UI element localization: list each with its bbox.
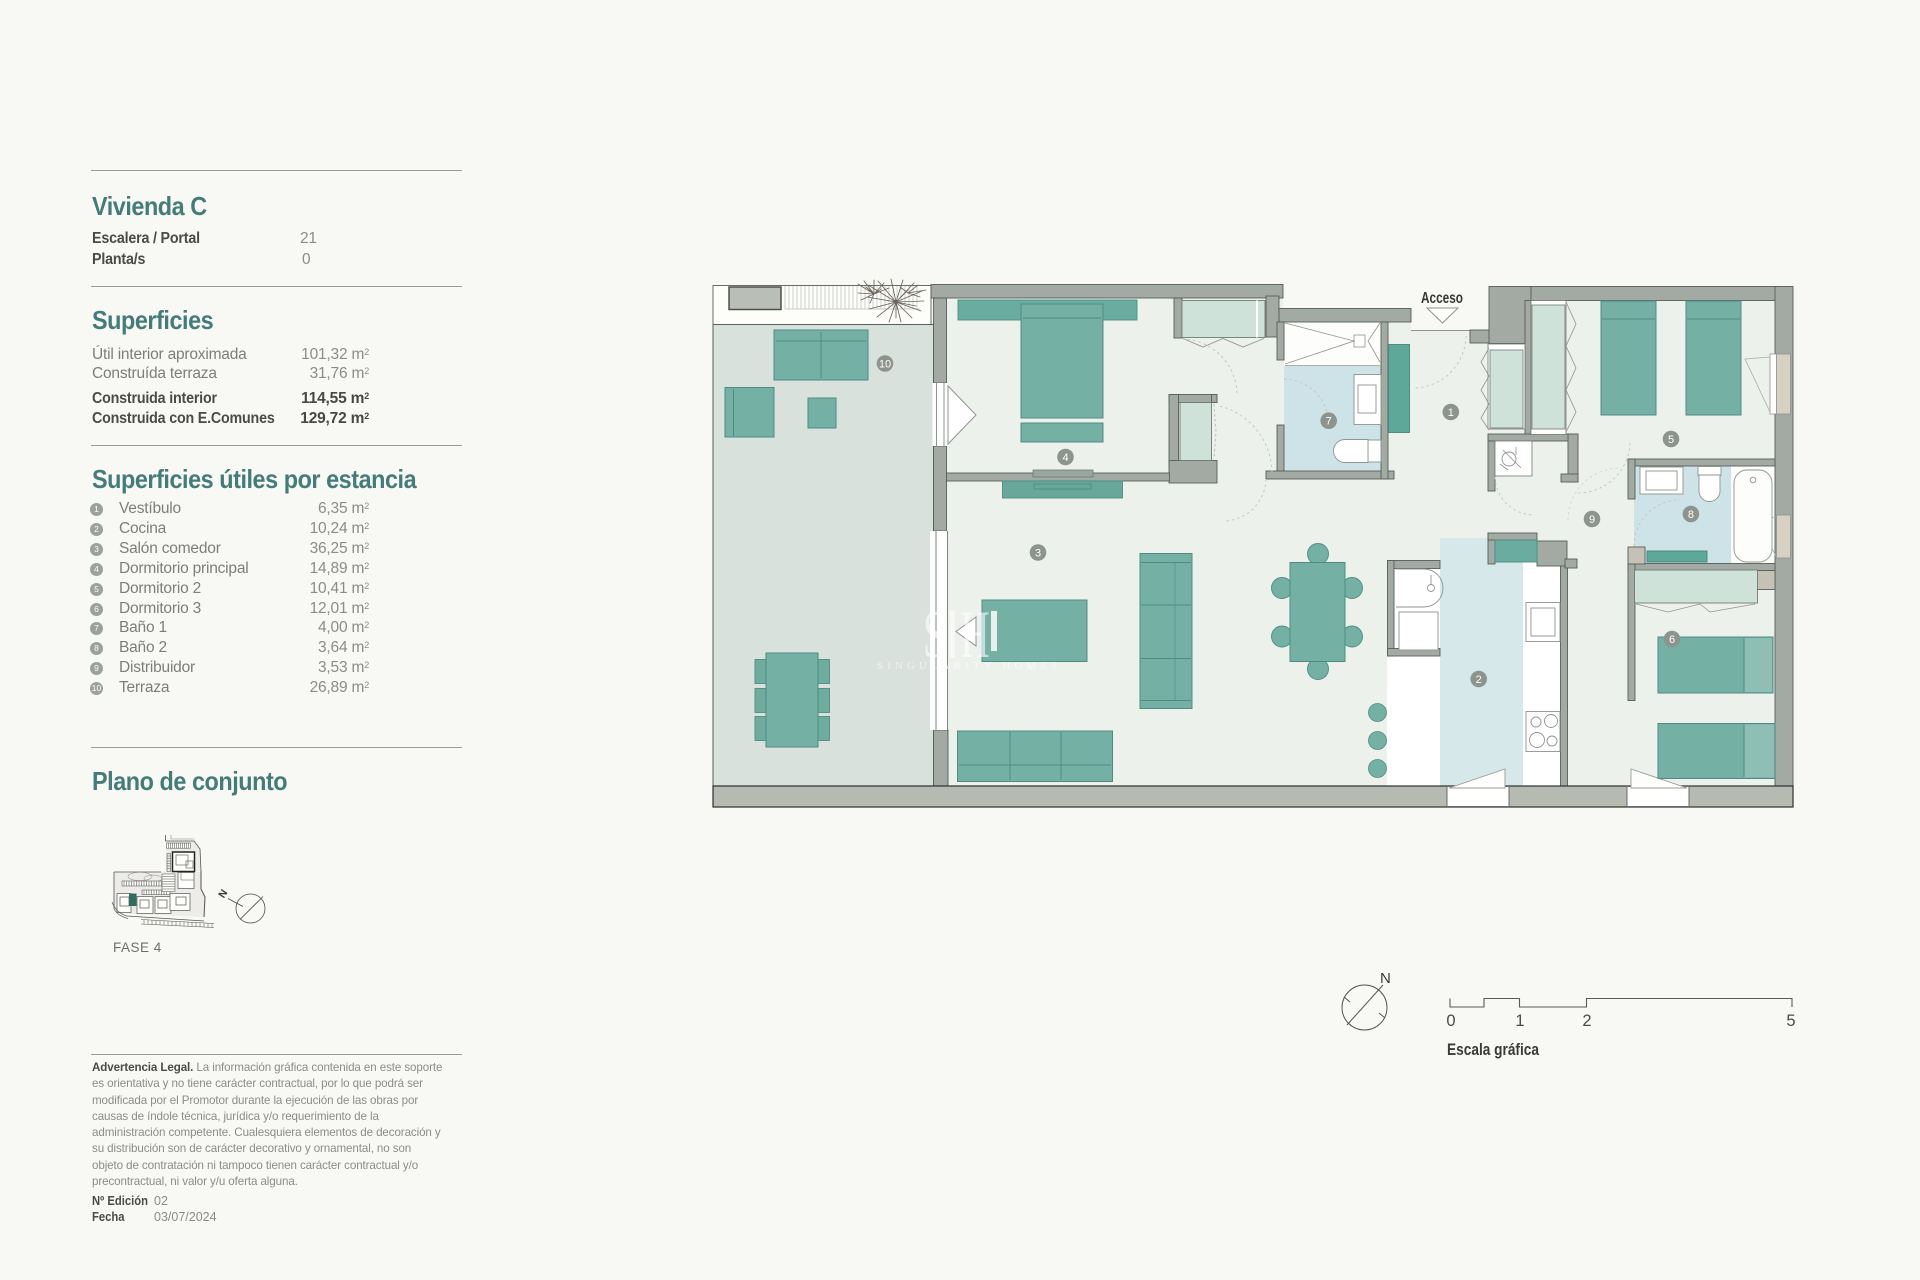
svg-text:7: 7	[1326, 416, 1332, 428]
svg-text:4: 4	[1062, 452, 1068, 464]
svg-text:Acceso: Acceso	[1421, 290, 1463, 307]
svg-text:2: 2	[1582, 1012, 1591, 1030]
svg-text:N: N	[1380, 970, 1391, 987]
svg-text:2: 2	[1476, 674, 1482, 686]
svg-text:1: 1	[1448, 407, 1454, 419]
svg-text:10: 10	[879, 359, 891, 371]
svg-text:1: 1	[1515, 1012, 1524, 1030]
svg-text:0: 0	[1446, 1012, 1455, 1030]
svg-text:6: 6	[1669, 634, 1675, 646]
svg-text:8: 8	[1688, 509, 1694, 521]
svg-text:5: 5	[1786, 1012, 1795, 1030]
svg-text:3: 3	[1035, 548, 1041, 560]
svg-text:5: 5	[1668, 434, 1674, 446]
svg-text:9: 9	[1589, 514, 1595, 526]
svg-text:Escala gráfica: Escala gráfica	[1447, 1041, 1540, 1059]
svg-text:SINGULARITY HOMES: SINGULARITY HOMES	[877, 661, 1061, 672]
